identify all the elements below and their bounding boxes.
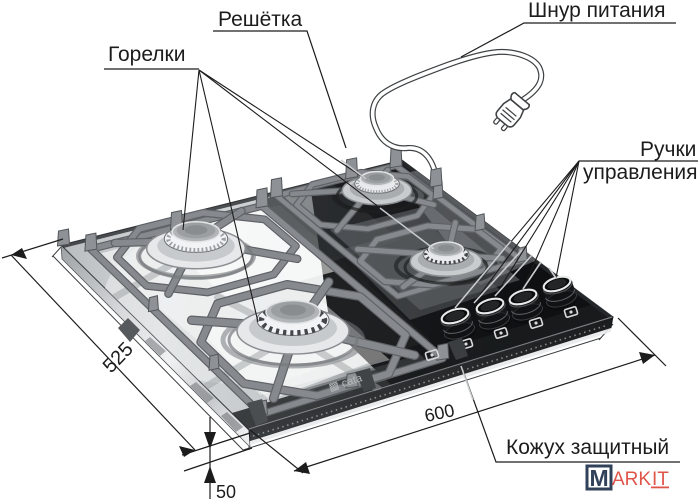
svg-text:50: 50 bbox=[216, 482, 236, 499]
svg-text:Шнур питания: Шнур питания bbox=[528, 0, 665, 22]
svg-text:Решётка: Решётка bbox=[218, 8, 303, 31]
svg-text:Кожух защитный: Кожух защитный bbox=[506, 436, 669, 459]
svg-text:M: M bbox=[590, 465, 609, 491]
svg-text:Ручки: Ручки bbox=[640, 138, 696, 161]
svg-text:управления: управления bbox=[583, 161, 698, 184]
svg-text:Горелки: Горелки bbox=[108, 43, 185, 66]
svg-text:ARK: ARK bbox=[612, 469, 651, 490]
